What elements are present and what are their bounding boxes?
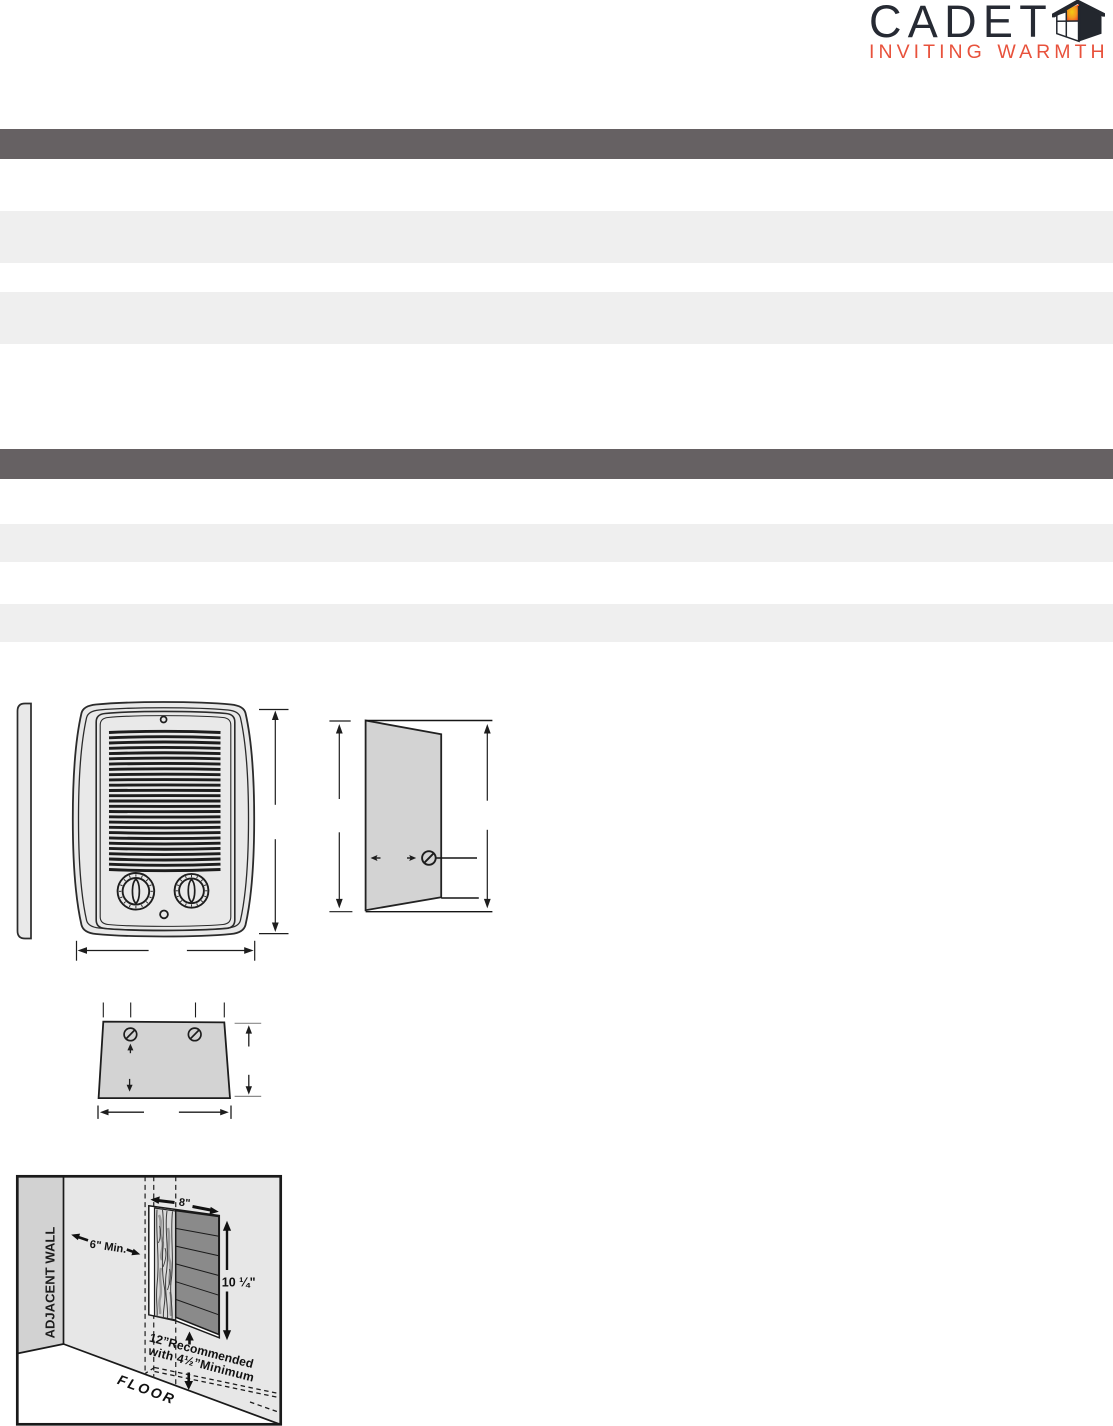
svg-text:10 ¼": 10 ¼" — [222, 1276, 256, 1290]
svg-text:ADJACENT WALL: ADJACENT WALL — [43, 1227, 58, 1339]
svg-text:8": 8" — [178, 1197, 191, 1210]
